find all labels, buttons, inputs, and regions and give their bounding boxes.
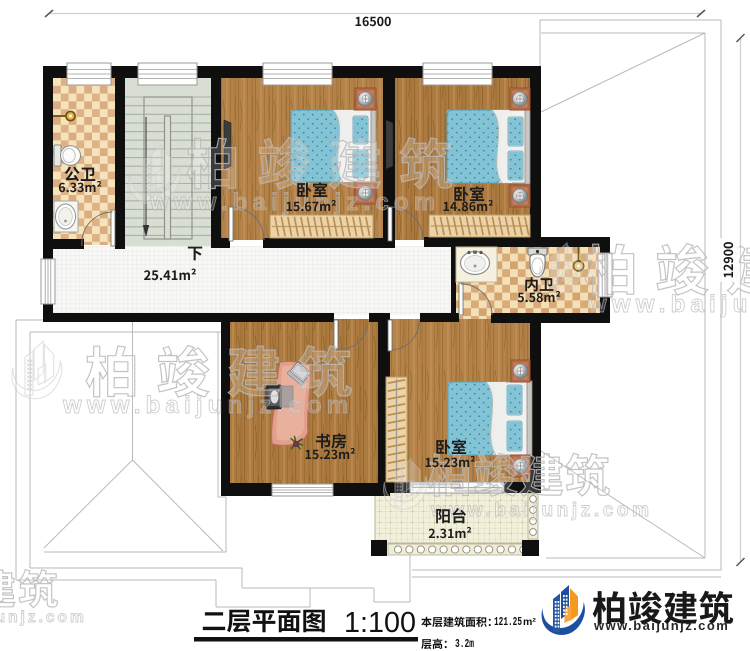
svg-text:www.baijunjz.com: www.baijunjz.com (587, 291, 750, 318)
svg-text:3.2m: 3.2m (455, 637, 474, 651)
svg-text:www.baijunjz.com: www.baijunjz.com (62, 392, 353, 419)
svg-text:www.baijunjz.com: www.baijunjz.com (0, 609, 87, 626)
svg-text:1:100: 1:100 (344, 607, 416, 639)
svg-text:www.baijunjz.com: www.baijunjz.com (593, 618, 729, 633)
svg-text:121.25: 121.25 (494, 615, 522, 629)
svg-text:m²: m² (523, 616, 536, 628)
